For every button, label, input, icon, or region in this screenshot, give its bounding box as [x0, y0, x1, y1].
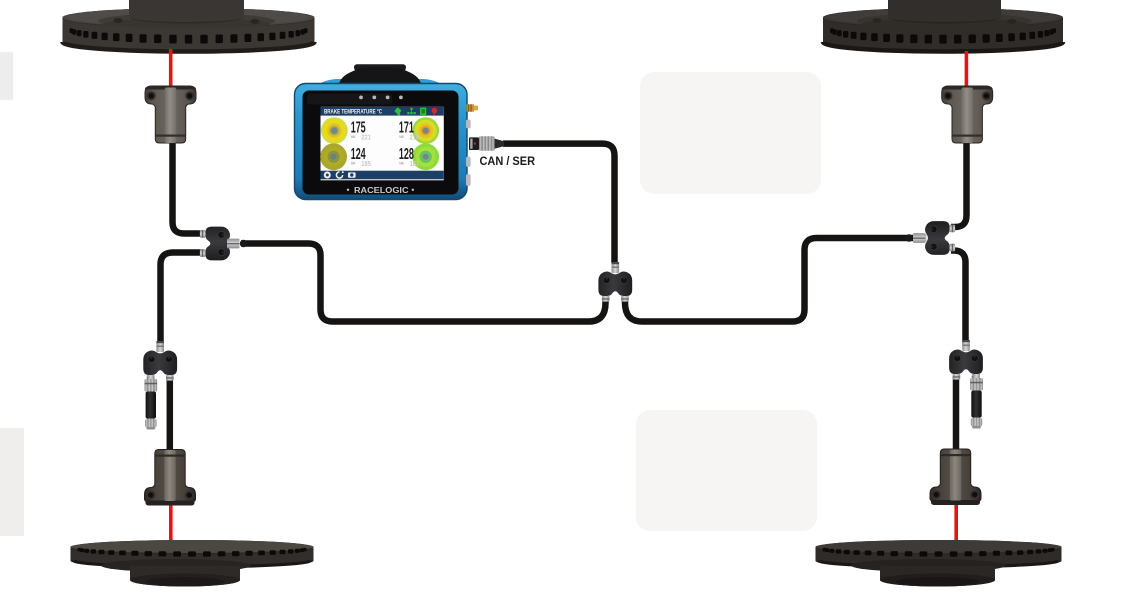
svg-text:181: 181 [410, 159, 420, 168]
svg-text:185: 185 [361, 159, 371, 168]
svg-text:221: 221 [361, 133, 371, 142]
svg-text:MAX: MAX [351, 162, 357, 166]
svg-text:218: 218 [410, 133, 420, 142]
svg-text:BRAKE TEMPERATURE °C: BRAKE TEMPERATURE °C [324, 108, 382, 116]
svg-text:MAX: MAX [351, 135, 357, 139]
svg-text:CAN / SER: CAN / SER [480, 154, 536, 168]
svg-text:RACELOGIC: RACELOGIC [354, 185, 409, 195]
svg-text:MAX: MAX [399, 162, 405, 166]
svg-text:MAX: MAX [399, 135, 405, 139]
